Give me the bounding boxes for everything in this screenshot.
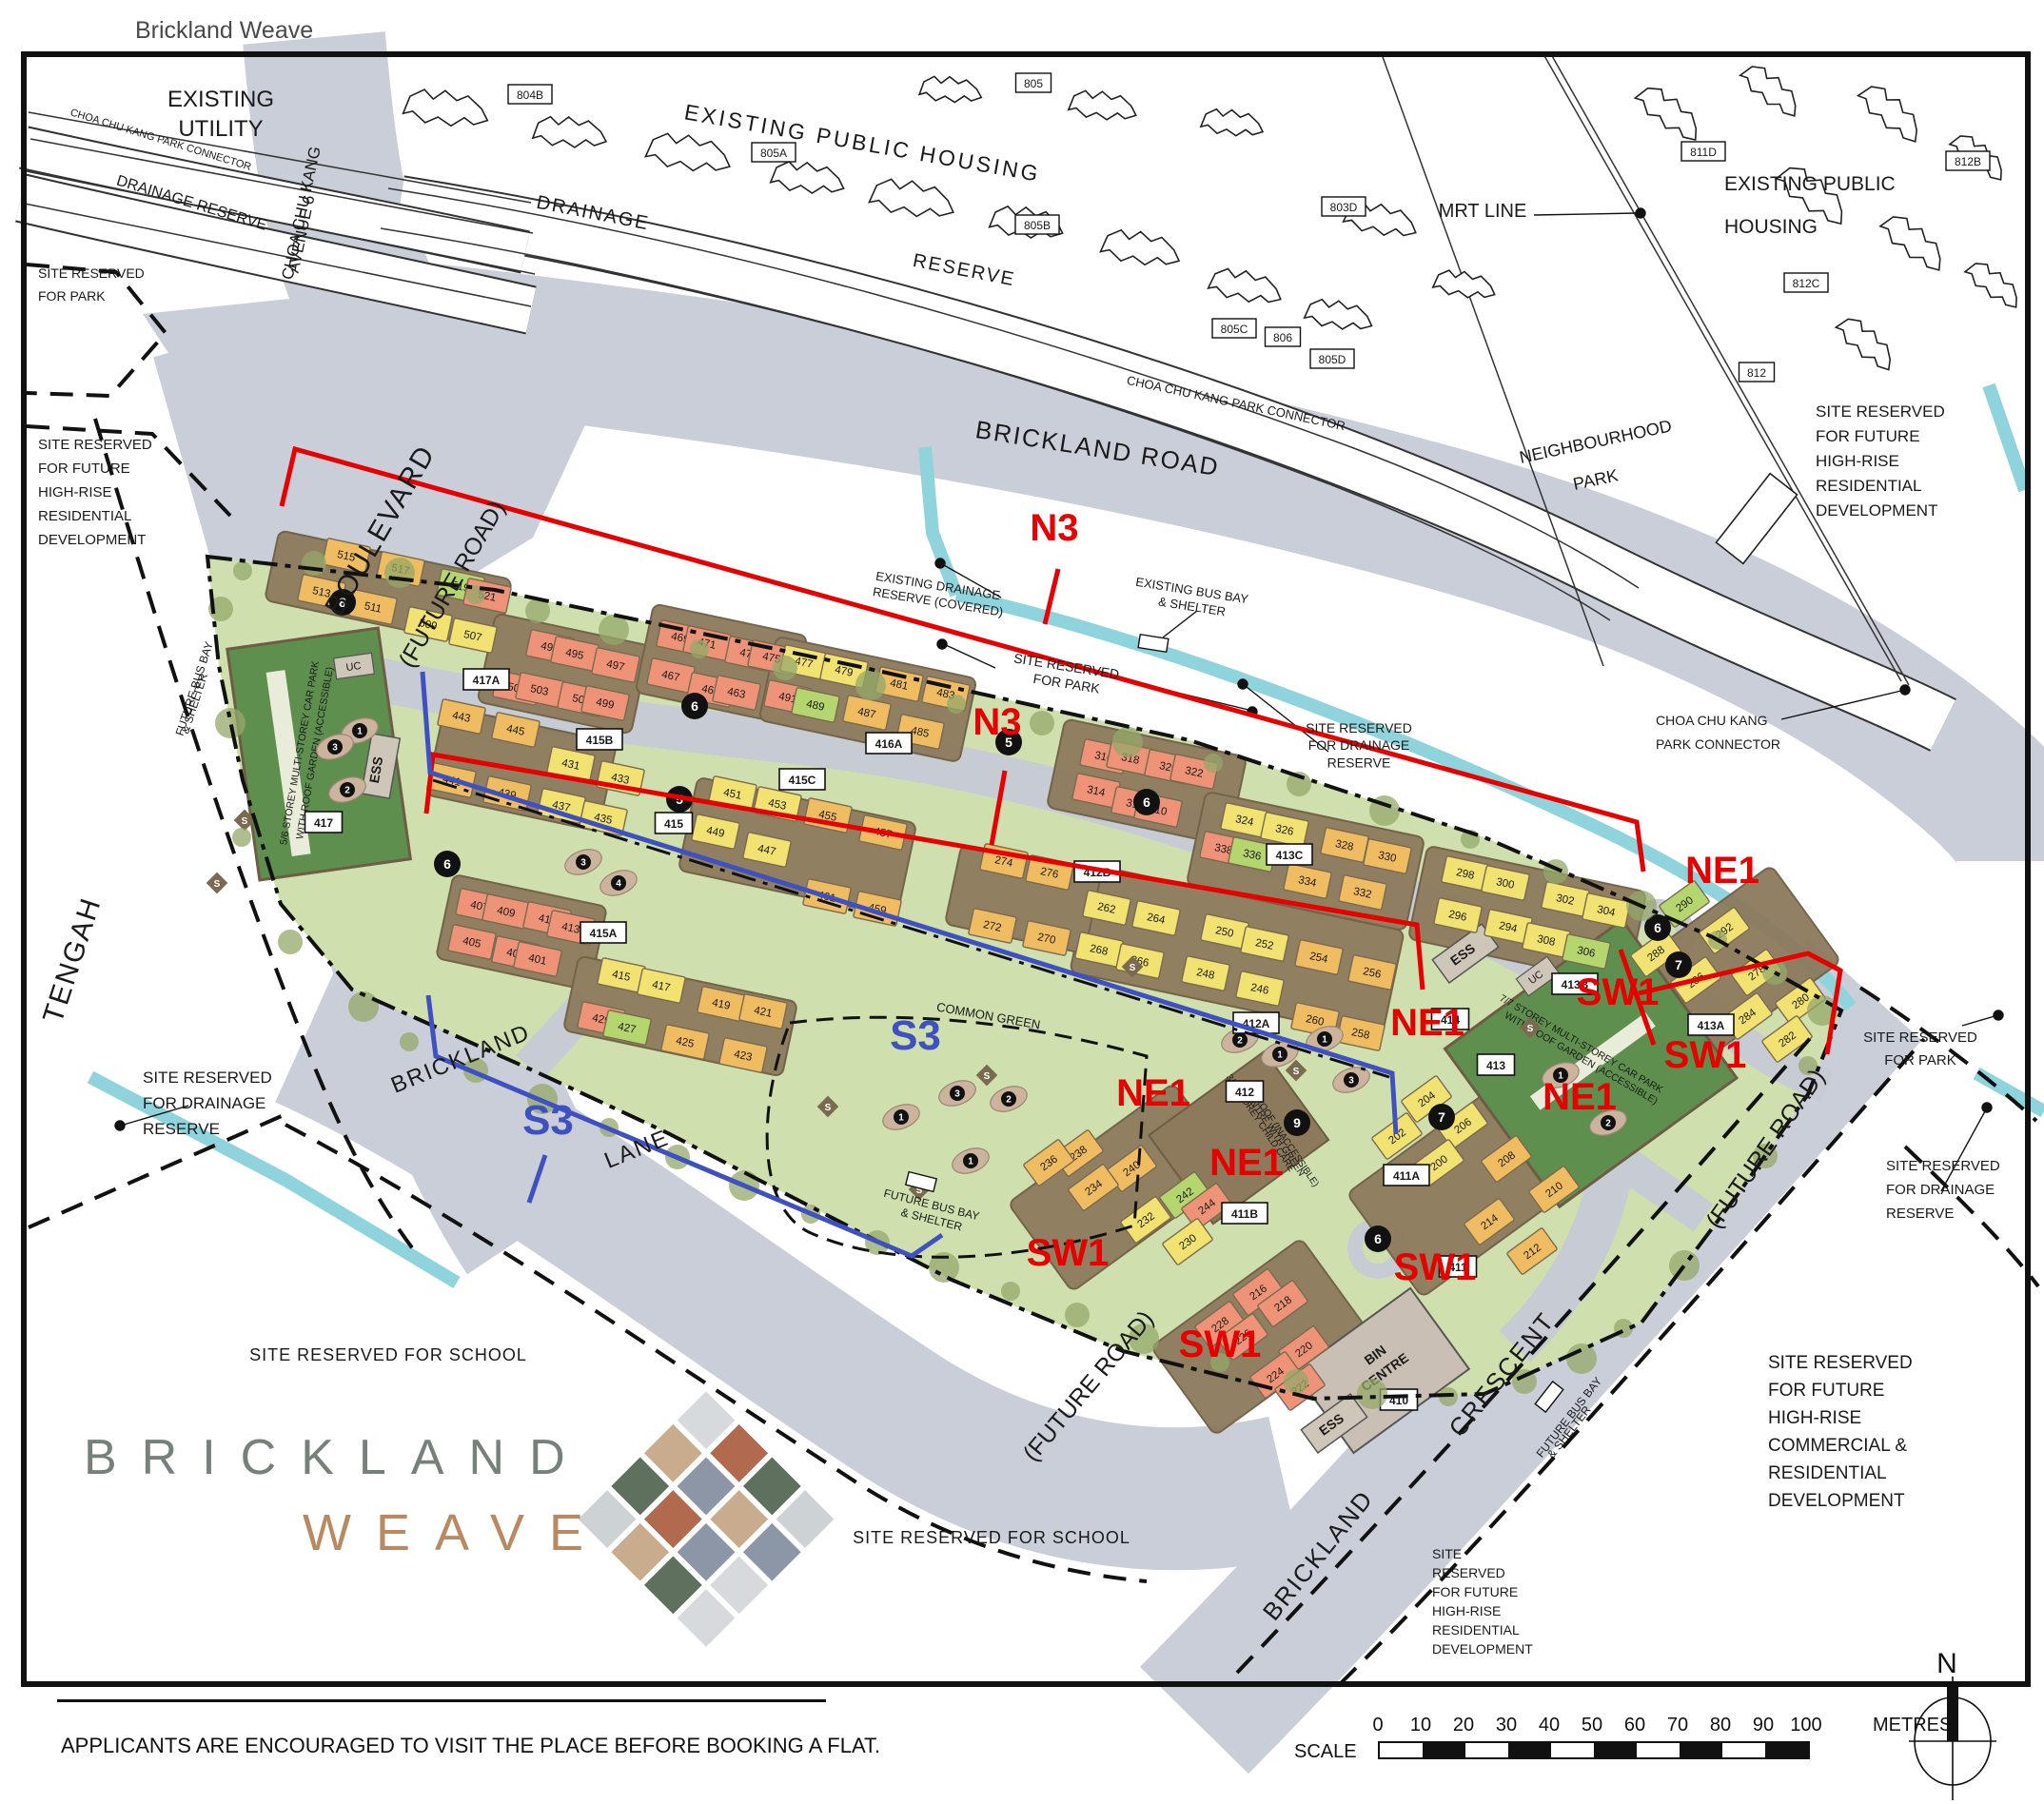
shelter-letter: S bbox=[825, 1103, 832, 1113]
playground-number: 1 bbox=[357, 727, 363, 737]
map-label: RESERVED bbox=[1432, 1565, 1505, 1580]
housing-block-outline bbox=[771, 162, 844, 193]
tree bbox=[599, 615, 629, 645]
scale-bar: SCALE METRES 0102030405060708090100 bbox=[1294, 1709, 1960, 1775]
map-label: RESIDENTIAL bbox=[1768, 1463, 1887, 1483]
map-label: SITE RESERVED bbox=[1816, 402, 1945, 421]
housing-block-outline bbox=[1740, 67, 1796, 116]
scale-tick: 60 bbox=[1616, 1715, 1654, 1736]
housing-tag-text: 812 bbox=[1747, 366, 1766, 380]
zone-label-red: NE1 bbox=[1209, 1142, 1284, 1184]
leader bbox=[1163, 611, 1197, 637]
map-label: RESIDENTIAL bbox=[1816, 477, 1921, 495]
housing-block-outline bbox=[1305, 300, 1372, 329]
scale-tick: 20 bbox=[1445, 1715, 1483, 1736]
site-plan-page: Brickland Weave 5/6 STOREY MULTI-STOREY … bbox=[0, 0, 2044, 1804]
map-label: RESERVE bbox=[911, 250, 1016, 290]
scale-tick: 80 bbox=[1701, 1715, 1739, 1736]
playground-number: 3 bbox=[954, 1089, 960, 1100]
map-label: RESIDENTIAL bbox=[1432, 1622, 1520, 1637]
leader-dot bbox=[935, 559, 945, 568]
logo-divider bbox=[57, 1699, 826, 1702]
map-label: HIGH-RISE bbox=[1816, 452, 1899, 470]
carpark-marker-number: 6 bbox=[1374, 1231, 1382, 1246]
leader bbox=[946, 645, 995, 668]
carpark-marker-number: 7 bbox=[1675, 957, 1682, 972]
uc-label: UC bbox=[345, 660, 362, 674]
scale-segment bbox=[1423, 1743, 1465, 1757]
housing-block-outline bbox=[1201, 109, 1263, 136]
carpark-marker-number: 6 bbox=[691, 698, 698, 714]
housing-block-outline bbox=[1965, 264, 2016, 307]
map-label: SITE RESERVED bbox=[1306, 720, 1412, 735]
map-label: DEVELOPMENT bbox=[1816, 501, 1937, 520]
scale-segment bbox=[1508, 1743, 1551, 1757]
map-label: SITE RESERVED bbox=[38, 437, 152, 453]
unit-tag-text: 417A bbox=[473, 674, 501, 687]
playground-number: 1 bbox=[1277, 1050, 1283, 1061]
zone-label-red: SW1 bbox=[1664, 1034, 1747, 1076]
tree bbox=[384, 558, 415, 588]
scale-segment bbox=[1551, 1743, 1594, 1757]
shelter-letter: S bbox=[1293, 1067, 1300, 1077]
tree bbox=[1112, 727, 1143, 757]
map-label: EXISTING PUBLIC bbox=[1724, 173, 1896, 195]
leader-dot bbox=[1982, 1103, 1992, 1112]
carpark-marker-number: 9 bbox=[1293, 1115, 1301, 1130]
map-label: FOR DRAINAGE bbox=[1886, 1182, 1995, 1198]
scale-segment bbox=[1680, 1743, 1722, 1757]
housing-tag-text: 811D bbox=[1690, 146, 1717, 159]
unit-tag-text: 413A bbox=[1698, 1019, 1725, 1032]
scale-tick: 30 bbox=[1487, 1715, 1525, 1736]
zone-label-red: NE1 bbox=[1116, 1072, 1190, 1114]
leader-dot bbox=[1994, 1010, 2003, 1020]
shelter-letter: S bbox=[214, 879, 221, 890]
housing-tag-text: 812B bbox=[1955, 155, 1981, 168]
shelter-letter: S bbox=[242, 816, 248, 827]
housing-tag-text: 812C bbox=[1793, 277, 1820, 290]
housing-tag-text: 804B bbox=[517, 88, 543, 102]
map-label: TENGAH bbox=[37, 893, 108, 1028]
housing-block-outline bbox=[1880, 217, 1940, 270]
unit-tag-text: 411B bbox=[1231, 1207, 1258, 1221]
unit-tag-text: 411A bbox=[1393, 1169, 1420, 1183]
map-label: SITE RESERVED bbox=[38, 265, 145, 281]
housing-block-outline bbox=[533, 117, 606, 147]
housing-block-outline bbox=[1858, 87, 1917, 142]
playground-number: 3 bbox=[332, 743, 338, 754]
map-label: SITE RESERVED FOR SCHOOL bbox=[853, 1528, 1130, 1547]
map-label: PARK CONNECTOR bbox=[1656, 736, 1780, 752]
housing-block-outline bbox=[1101, 230, 1180, 265]
scale-segment bbox=[1594, 1743, 1637, 1757]
housing-tag-text: 805C bbox=[1221, 323, 1248, 336]
scale-label: SCALE bbox=[1294, 1741, 1357, 1763]
carpark-marker-number: 6 bbox=[1654, 920, 1661, 935]
unit-tag-text: 415A bbox=[590, 927, 618, 940]
map-label: SITE RESERVED bbox=[1886, 1158, 2000, 1174]
scale-unit: METRES bbox=[1873, 1715, 1952, 1736]
housing-block-outline bbox=[403, 89, 488, 126]
logo-wordmark-brickland: BRICKLAND bbox=[84, 1429, 590, 1486]
scale-tick: 50 bbox=[1573, 1715, 1611, 1736]
playground-number: 4 bbox=[616, 879, 621, 890]
tree bbox=[400, 1032, 419, 1051]
zone-label-red: N3 bbox=[973, 701, 1021, 743]
scale-segment bbox=[1722, 1743, 1765, 1757]
map-label: EXISTING PUBLIC HOUSING bbox=[682, 99, 1042, 186]
logo-wordmark-weave: WEAVE bbox=[303, 1503, 608, 1562]
map-label: FOR FUTURE bbox=[38, 461, 130, 477]
housing-block-outline bbox=[869, 179, 953, 216]
compass-north-label: N bbox=[1936, 1648, 1957, 1679]
leader-dot bbox=[937, 639, 947, 649]
unit-tag-text: 415 bbox=[664, 817, 683, 831]
zone-label-red: NE1 bbox=[1685, 850, 1759, 892]
map-label: HIGH-RISE bbox=[38, 484, 112, 500]
tree bbox=[1566, 1343, 1597, 1374]
map-label: RESERVE bbox=[1886, 1206, 1954, 1222]
map-label: FOR DRAINAGE bbox=[143, 1094, 265, 1112]
scale-tick: 10 bbox=[1402, 1715, 1440, 1736]
tree bbox=[947, 695, 966, 714]
map-label: HIGH-RISE bbox=[1432, 1603, 1501, 1618]
scale-segment bbox=[1637, 1743, 1680, 1757]
scale-tick: 0 bbox=[1359, 1715, 1397, 1736]
map-label: FOR PARK bbox=[38, 288, 106, 304]
unit-tag-text: 412 bbox=[1235, 1086, 1254, 1099]
map-label: FOR DRAINAGE bbox=[1308, 737, 1410, 753]
scale-segment bbox=[1380, 1743, 1423, 1757]
zone-label-red: NE1 bbox=[1390, 1002, 1464, 1044]
map-label: EXISTING bbox=[167, 87, 274, 112]
housing-tag-text: 803D bbox=[1330, 201, 1358, 214]
tree bbox=[1001, 1282, 1020, 1301]
map-label: CHOA CHU KANG bbox=[1656, 713, 1767, 728]
scale-segment bbox=[1465, 1743, 1508, 1757]
playground-number: 1 bbox=[898, 1113, 904, 1124]
carpark-marker-number: 7 bbox=[1438, 1109, 1445, 1125]
housing-block-outline bbox=[1635, 88, 1696, 140]
tree bbox=[233, 561, 252, 580]
playground-number: 2 bbox=[1006, 1095, 1012, 1106]
disclaimer-text: APPLICANTS ARE ENCOURAGED TO VISIT THE P… bbox=[61, 1734, 880, 1758]
scale-tick: 70 bbox=[1659, 1715, 1697, 1736]
housing-block-outline bbox=[1716, 474, 1797, 564]
zone-label-red: SW1 bbox=[1394, 1246, 1477, 1288]
leader-dot bbox=[1238, 679, 1248, 689]
map-label: HIGH-RISE bbox=[1768, 1408, 1861, 1428]
tree bbox=[1669, 1250, 1700, 1281]
page-title: Brickland Weave bbox=[135, 17, 313, 45]
unit-tag-text: 417 bbox=[314, 816, 333, 830]
housing-tag-text: 805 bbox=[1024, 77, 1043, 90]
scale-tick: 100 bbox=[1787, 1715, 1825, 1736]
leader-dot bbox=[1636, 208, 1645, 218]
unit-tag-text: 413C bbox=[1276, 849, 1304, 862]
scale-tick: 40 bbox=[1530, 1715, 1568, 1736]
map-label: RESIDENTIAL bbox=[38, 508, 131, 524]
housing-block-outline bbox=[1433, 270, 1495, 298]
playground-number: 2 bbox=[344, 786, 350, 796]
map-label: SITE bbox=[1432, 1546, 1462, 1561]
map-label: FOR FUTURE bbox=[1768, 1381, 1884, 1401]
housing-block-outline bbox=[1069, 90, 1136, 120]
playground-number: 2 bbox=[1237, 1036, 1243, 1047]
map-label: DEVELOPMENT bbox=[1432, 1641, 1533, 1657]
shelter-letter: S bbox=[1527, 1024, 1534, 1034]
unit-tag-text: 415C bbox=[789, 774, 816, 787]
shelter-letter: S bbox=[1130, 963, 1136, 973]
tree bbox=[1284, 1369, 1308, 1394]
tree bbox=[232, 828, 251, 847]
map-label: NEIGHBOURHOOD bbox=[1518, 416, 1674, 466]
map-label: SITE RESERVED bbox=[1863, 1029, 1977, 1046]
housing-block-outline bbox=[645, 133, 729, 170]
map-label: PARK bbox=[1571, 465, 1620, 493]
shelter-letter: S bbox=[984, 1071, 991, 1082]
map-label: UTILITY bbox=[178, 116, 263, 142]
map-label: RESERVE bbox=[1327, 755, 1391, 770]
tree bbox=[1357, 1379, 1387, 1409]
tree bbox=[1065, 1303, 1090, 1327]
housing-block-outline bbox=[1209, 269, 1281, 303]
zone-label-red: SW1 bbox=[1027, 1232, 1110, 1274]
playground-number: 1 bbox=[1322, 1035, 1327, 1046]
playground-number: 2 bbox=[1605, 1119, 1611, 1129]
unit-tag-text: 413 bbox=[1486, 1059, 1505, 1072]
housing-block-outline bbox=[1836, 319, 1890, 369]
zone-label-red: SW1 bbox=[1577, 971, 1660, 1013]
leader-dot bbox=[1900, 685, 1910, 695]
tree bbox=[855, 670, 886, 700]
zone-label-red: SW1 bbox=[1179, 1324, 1262, 1365]
housing-tag-text: 806 bbox=[1273, 331, 1292, 344]
scale-bar-strip bbox=[1378, 1741, 1810, 1759]
playground-number: 3 bbox=[580, 858, 586, 869]
leader-dot bbox=[115, 1121, 125, 1130]
housing-block-outline bbox=[919, 76, 981, 102]
carpark-marker-number: 6 bbox=[443, 856, 451, 872]
map-label: DEVELOPMENT bbox=[38, 532, 146, 548]
housing-tag-text: 805A bbox=[760, 147, 787, 160]
map-label: SITE RESERVED bbox=[1768, 1353, 1913, 1373]
scale-segment bbox=[1765, 1743, 1808, 1757]
playground-number: 1 bbox=[968, 1157, 973, 1167]
leader bbox=[1941, 1111, 1985, 1191]
zone-label-red: NE1 bbox=[1543, 1076, 1617, 1118]
tree bbox=[1030, 711, 1054, 735]
carpark-marker-number: 6 bbox=[1143, 794, 1150, 810]
tree bbox=[278, 930, 303, 954]
tree bbox=[690, 639, 709, 658]
map-label: FOR FUTURE bbox=[1816, 427, 1920, 445]
playground-number: 3 bbox=[1348, 1076, 1354, 1087]
zone-label-blue: S3 bbox=[522, 1097, 574, 1144]
map-label: SITE RESERVED bbox=[143, 1069, 272, 1087]
map-label: COMMERCIAL & bbox=[1768, 1436, 1907, 1456]
tree bbox=[302, 551, 326, 576]
zone-label-blue: S3 bbox=[890, 1012, 941, 1059]
leader bbox=[1534, 213, 1637, 215]
zone-label-red: N3 bbox=[1030, 507, 1078, 549]
tree bbox=[773, 656, 797, 680]
tree bbox=[1204, 754, 1223, 773]
map-label: DEVELOPMENT bbox=[1768, 1491, 1905, 1511]
map-label: FOR PARK bbox=[1884, 1052, 1956, 1069]
housing-tag-text: 805D bbox=[1319, 353, 1346, 366]
map-label: SITE RESERVED FOR SCHOOL bbox=[249, 1345, 527, 1364]
scale-tick: 90 bbox=[1744, 1715, 1782, 1736]
map-label: FOR FUTURE bbox=[1432, 1584, 1518, 1599]
unit-tag-text: 415B bbox=[586, 734, 614, 747]
map-label: RESERVE bbox=[143, 1120, 220, 1138]
map-label: MRT LINE bbox=[1439, 201, 1527, 222]
road-boundary-dash bbox=[27, 265, 166, 396]
housing-tag-text: 805B bbox=[1024, 219, 1051, 232]
map-label: HOUSING bbox=[1724, 216, 1818, 238]
leader bbox=[1962, 1016, 1995, 1026]
unit-tag-text: 416A bbox=[875, 737, 903, 751]
